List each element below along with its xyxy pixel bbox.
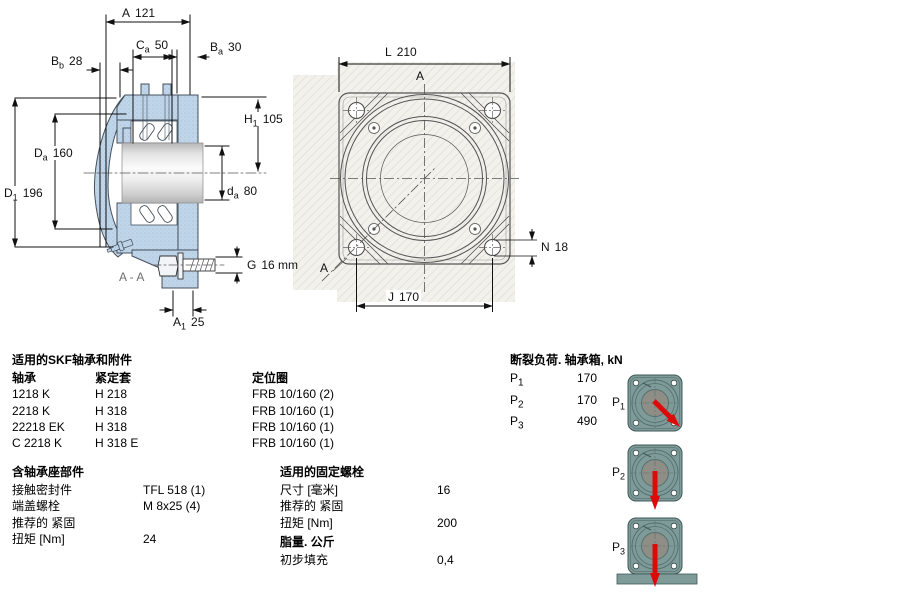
dim-label-a1: A125 xyxy=(173,315,204,329)
table-row: 2218 K xyxy=(12,403,95,419)
col-header-sleeve: 紧定套 xyxy=(95,370,252,386)
hatch-background-right xyxy=(337,62,515,302)
load-direction-images xyxy=(617,375,697,587)
dim-label-h1: H1105 xyxy=(242,112,285,126)
dim-label-a: A121 xyxy=(122,6,155,20)
dim-label-ca: Ca50 xyxy=(136,38,168,52)
table-title: 适用的固定螺栓 xyxy=(280,464,457,480)
load-label-p1: P1 xyxy=(612,395,625,409)
dim-label-da-housing: Da160 xyxy=(32,146,75,160)
table-row: 尺寸 [毫米] xyxy=(280,482,437,498)
table-row: P1 xyxy=(510,370,577,392)
section-mark-top: A xyxy=(416,69,424,83)
section-mark-corner: A xyxy=(320,261,328,275)
load-label-p3: P3 xyxy=(612,540,625,554)
dim-label-bb: Bb28 xyxy=(51,54,82,68)
table-title: 含轴承座部件 xyxy=(12,464,205,480)
fixing-bolts-table: 适用的固定螺栓 尺寸 [毫米] 16 推荐的 紧固 扭矩 [Nm] 200 xyxy=(280,464,457,531)
dim-label-d1: D1196 xyxy=(2,186,45,200)
table-row: 推荐的 紧固 xyxy=(12,515,143,531)
table-title: 断裂负荷. 轴承箱, kN xyxy=(510,352,623,368)
dim-label-da-shaft: da80 xyxy=(225,184,259,198)
dim-label-j: J170 xyxy=(386,290,421,304)
table-row: P2 xyxy=(510,392,577,414)
col-header-bearing: 轴承 xyxy=(12,370,95,386)
table-row: 1218 K xyxy=(12,386,95,402)
dim-label-n: N18 xyxy=(541,240,568,254)
load-label-p2: P2 xyxy=(612,465,625,479)
table-title: 适用的SKF轴承和附件 xyxy=(12,352,334,368)
table-row: 扭矩 [Nm] xyxy=(12,531,143,547)
dim-label-ba: Ba30 xyxy=(210,40,241,54)
bearing-accessories-table: 适用的SKF轴承和附件 轴承 紧定套 定位圈 1218 K H 218 FRB … xyxy=(12,352,334,451)
hatch-background-left xyxy=(293,75,337,290)
table-row: 22218 EK xyxy=(12,419,95,435)
table-row: 扭矩 [Nm] xyxy=(280,515,437,531)
breaking-loads-table: 断裂负荷. 轴承箱, kN P1 170 P2 170 P3 490 xyxy=(510,352,623,435)
table-row: 端盖螺栓 xyxy=(12,498,143,514)
housing-parts-table: 含轴承座部件 接触密封件 TFL 518 (1) 端盖螺栓 M 8x25 (4)… xyxy=(12,464,205,547)
table-row: 接触密封件 xyxy=(12,482,143,498)
table-title: 脂量. 公斤 xyxy=(280,534,454,550)
dim-label-g: G16 mm xyxy=(247,258,298,272)
section-label: A - A xyxy=(119,270,144,284)
dim-label-l: L210 xyxy=(385,45,417,59)
datasheet-page: A121 Ca50 Ba30 Bb28 H1105 Da160 D1196 da… xyxy=(0,0,900,600)
grease-table: 脂量. 公斤 初步填充 0,4 xyxy=(280,534,454,568)
table-row: P3 xyxy=(510,413,577,435)
col-header-ring: 定位圈 xyxy=(252,370,334,386)
table-row: 初步填充 xyxy=(280,552,437,568)
table-row: 推荐的 紧固 xyxy=(280,498,437,514)
table-row: C 2218 K xyxy=(12,435,95,451)
